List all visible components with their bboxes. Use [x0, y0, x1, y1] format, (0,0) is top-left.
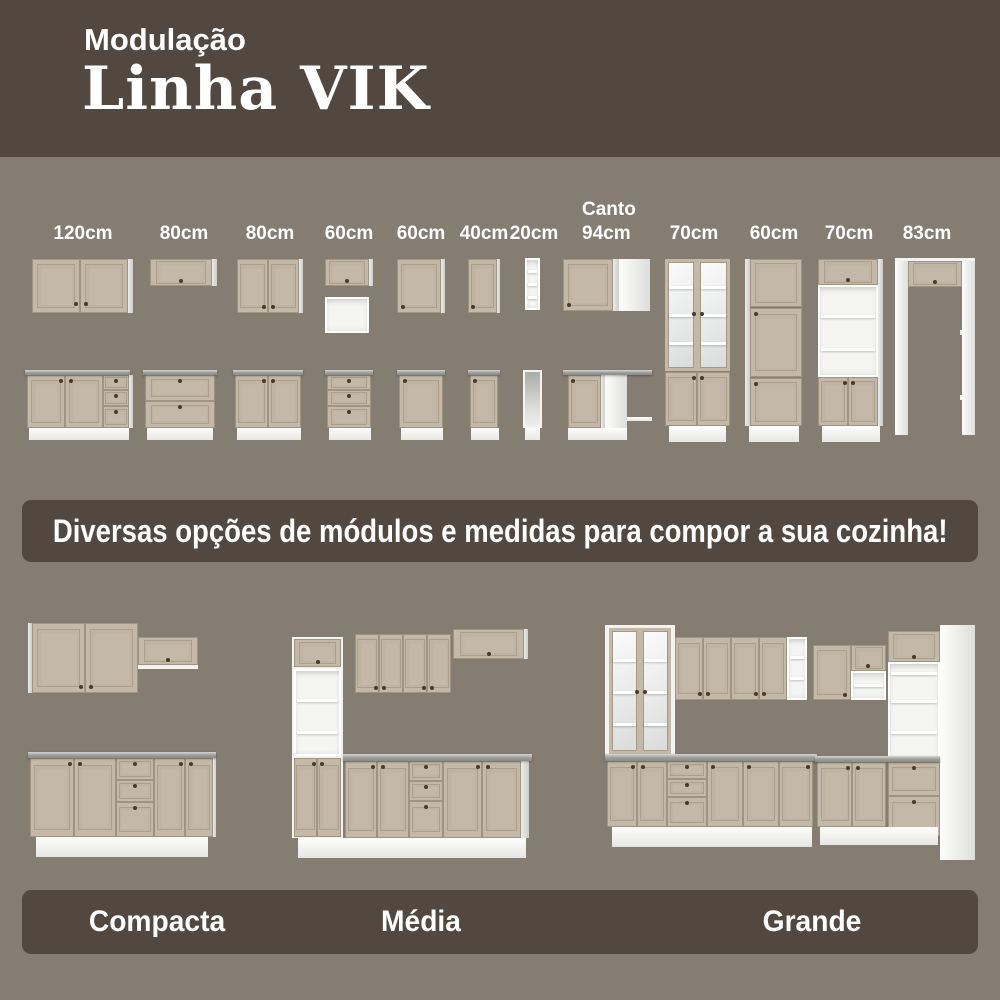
shelf [669, 286, 693, 289]
knob [114, 394, 118, 398]
base-door [852, 762, 886, 827]
drawer [667, 779, 707, 797]
shelf [297, 731, 338, 734]
base-door [817, 762, 852, 827]
knob [754, 312, 758, 316]
knob [851, 381, 855, 385]
plinth [471, 428, 499, 440]
knob [401, 305, 405, 309]
shelf [854, 684, 883, 687]
module-label-83cm: 83cm [903, 222, 952, 246]
knob [806, 765, 810, 769]
shelf [790, 656, 804, 659]
shelf [644, 659, 667, 662]
countertop [397, 370, 445, 375]
wall-cabinet-door [355, 634, 379, 693]
countertop [325, 370, 373, 375]
countertop [233, 370, 303, 375]
pantry-door [750, 259, 802, 307]
tower-open-shelves [888, 662, 940, 762]
plinth [147, 428, 213, 440]
wall-cabinet-door [32, 623, 85, 693]
countertop [28, 752, 216, 758]
tall-side-panel [940, 625, 975, 860]
knob [685, 801, 689, 805]
knob [487, 652, 491, 656]
knob [78, 762, 82, 766]
knob [866, 664, 870, 668]
module-label-70cm-b: 70cm [825, 222, 874, 246]
tower-open-shelves [294, 669, 341, 756]
countertop [563, 370, 652, 375]
cabinet-side-panel [369, 259, 373, 286]
module-label-40cm: 40cm [460, 222, 509, 246]
knob [473, 379, 477, 383]
plinth [568, 428, 627, 440]
knob [74, 302, 78, 306]
wall-cabinet-door [731, 637, 759, 700]
shelf [613, 691, 636, 694]
plinth [298, 838, 526, 858]
knob [114, 379, 118, 383]
knob [754, 382, 758, 386]
knob [430, 686, 434, 690]
wall-cabinet-door [675, 637, 703, 700]
drawer [409, 761, 443, 781]
plinth [329, 428, 371, 440]
knob [69, 379, 73, 383]
size-label-media: Média [381, 905, 461, 939]
corner-base-door [779, 761, 813, 827]
module-label-60cm-a: 60cm [325, 222, 374, 246]
cabinet-side-panel [212, 259, 217, 286]
base-door [185, 758, 213, 837]
shelf [644, 723, 667, 726]
pantry-door [750, 378, 802, 426]
shelf [891, 700, 937, 703]
corner-white-panel [605, 375, 627, 428]
base-door [482, 761, 521, 838]
knob [320, 762, 324, 766]
knob [635, 690, 639, 694]
cabinet-side-panel [213, 758, 216, 837]
knob [316, 660, 320, 664]
base-door [707, 761, 743, 827]
knob [271, 305, 275, 309]
knob [424, 805, 428, 809]
module-label-canto-94cm: Canto 94cm [582, 198, 636, 246]
base-door [637, 761, 667, 827]
knob [68, 762, 72, 766]
knob [178, 379, 182, 383]
plinth [612, 827, 812, 847]
knob [643, 690, 647, 694]
knob [692, 312, 696, 316]
drawer [667, 761, 707, 779]
knob [166, 658, 170, 662]
knob [846, 766, 850, 770]
knob [843, 693, 847, 697]
open-shelf-unit [525, 258, 540, 310]
knob [84, 302, 88, 306]
shelf [528, 270, 537, 273]
plinth [822, 426, 880, 442]
knob [912, 766, 916, 770]
fridge-side-column [895, 258, 908, 435]
wall-cabinet-door [759, 637, 787, 700]
knob [179, 279, 183, 283]
cabinet-side-panel [441, 259, 445, 313]
knob [567, 303, 571, 307]
base-door [27, 375, 65, 428]
cabinet-side-panel [299, 259, 303, 313]
countertop [143, 370, 217, 375]
plinth [820, 827, 938, 845]
drawer [327, 390, 371, 406]
knob [912, 655, 916, 659]
knob [685, 783, 689, 787]
knob [571, 379, 575, 383]
countertop [605, 754, 817, 761]
shelf [613, 723, 636, 726]
cabinet-bottom-edge [138, 665, 198, 669]
knob [312, 762, 316, 766]
plinth [401, 428, 443, 440]
knob [382, 686, 386, 690]
knob [179, 762, 183, 766]
drawer [103, 390, 129, 406]
knob [178, 405, 182, 409]
shelf [821, 315, 875, 318]
shelf [528, 283, 537, 286]
countertop [815, 756, 940, 762]
plinth [237, 428, 301, 440]
base-door [30, 758, 74, 837]
shelf [701, 286, 726, 289]
wall-cabinet-door [703, 637, 731, 700]
base-door [743, 761, 779, 827]
base-door [154, 758, 185, 837]
countertop-return [627, 417, 652, 421]
knob [347, 410, 351, 414]
module-label-60cm-c: 60cm [750, 222, 799, 246]
page-title: Linha VIK [82, 54, 430, 124]
knob [133, 784, 137, 788]
base-door [443, 761, 482, 838]
plinth [749, 426, 799, 442]
tower-open-shelves [818, 285, 878, 377]
countertop [468, 370, 500, 375]
shelf [821, 348, 875, 351]
plinth [669, 426, 726, 442]
knob [79, 685, 83, 689]
fridge-side-column [962, 258, 975, 435]
module-label-80cm-b: 80cm [246, 222, 295, 246]
module-label-20cm: 20cm [510, 222, 559, 246]
knob [856, 766, 860, 770]
info-banner: Diversas opções de módulos e medidas par… [22, 500, 978, 562]
cabinet-side-panel [524, 629, 528, 659]
header-subtitle: Modulação [84, 22, 246, 58]
knob [89, 685, 93, 689]
knob [476, 765, 480, 769]
base-door [377, 761, 409, 838]
cabinet-side-panel [129, 375, 133, 428]
shelf [644, 691, 667, 694]
knob [424, 785, 428, 789]
base-door [665, 372, 697, 426]
knob [403, 379, 407, 383]
knob [424, 765, 428, 769]
cabinet-side-panel [497, 259, 500, 313]
knob [262, 305, 266, 309]
shelf [701, 314, 726, 317]
knob [114, 410, 118, 414]
countertop [343, 754, 532, 761]
knob [422, 686, 426, 690]
knob [846, 278, 850, 282]
knob [762, 692, 766, 696]
knob [706, 692, 710, 696]
wall-cabinet-door [403, 634, 427, 693]
knob [189, 762, 193, 766]
open-niche [325, 297, 369, 333]
wall-cabinet-door [427, 634, 451, 693]
base-door [399, 375, 443, 428]
knob [347, 394, 351, 398]
knob [133, 806, 137, 810]
hinge-mark [960, 330, 963, 335]
cabinet-side-panel [878, 259, 883, 426]
wall-cabinet-door [32, 259, 80, 313]
knob [371, 765, 375, 769]
knob [631, 765, 635, 769]
cabinet-side-panel [521, 761, 529, 838]
module-label-80cm-a: 80cm [160, 222, 209, 246]
wall-cabinet-door [85, 623, 138, 693]
base-door [317, 758, 341, 837]
knob [381, 765, 385, 769]
knob [59, 379, 63, 383]
size-label-grande: Grande [763, 905, 862, 939]
open-niche-tall [523, 370, 542, 428]
knob [700, 376, 704, 380]
knob [711, 765, 715, 769]
knob [374, 686, 378, 690]
shelf [669, 314, 693, 317]
knob [641, 765, 645, 769]
knob [692, 376, 696, 380]
shelf [790, 677, 804, 680]
drawer [409, 781, 443, 801]
knob [345, 279, 349, 283]
shelf [669, 342, 693, 345]
knob [271, 379, 275, 383]
knob [486, 765, 490, 769]
corner-white-panel [619, 259, 650, 311]
base-door [345, 761, 377, 838]
wall-cabinet-door [813, 645, 851, 700]
shelf [297, 699, 338, 702]
shelf [701, 342, 726, 345]
open-niche [851, 671, 886, 700]
base-door [697, 372, 730, 426]
size-label-compacta: Compacta [89, 905, 225, 939]
knob [912, 800, 916, 804]
shelf [613, 659, 636, 662]
plinth [36, 837, 208, 857]
sizes-banner: Compacta Média Grande [22, 890, 978, 954]
hinge-mark [960, 395, 963, 400]
knob [843, 381, 847, 385]
knob [700, 312, 704, 316]
knob [133, 762, 137, 766]
base-door [607, 761, 637, 827]
base-door [74, 758, 116, 837]
pantry-door [750, 308, 802, 377]
base-door [294, 758, 317, 837]
module-label-120cm: 120cm [53, 222, 112, 246]
module-label-70cm-a: 70cm [670, 222, 719, 246]
knob [747, 765, 751, 769]
shelf [891, 731, 937, 734]
knob [754, 692, 758, 696]
header: Modulação Linha VIK [0, 0, 1000, 157]
knob [933, 280, 937, 284]
countertop [25, 370, 130, 375]
cabinet-side-panel [128, 259, 133, 313]
plinth [525, 428, 540, 440]
knob [262, 379, 266, 383]
knob [347, 379, 351, 383]
knob [685, 765, 689, 769]
wall-cabinet-door [379, 634, 403, 693]
info-banner-text: Diversas opções de módulos e medidas par… [53, 513, 948, 550]
corner-open-shelves [787, 637, 807, 700]
shelf [528, 296, 537, 299]
page: Modulação Linha VIK 120cm 80cm 80cm 60cm… [0, 0, 1000, 1000]
shelf [891, 672, 937, 675]
knob [698, 692, 702, 696]
plinth [29, 428, 129, 440]
module-label-60cm-b: 60cm [397, 222, 446, 246]
knob [471, 305, 475, 309]
